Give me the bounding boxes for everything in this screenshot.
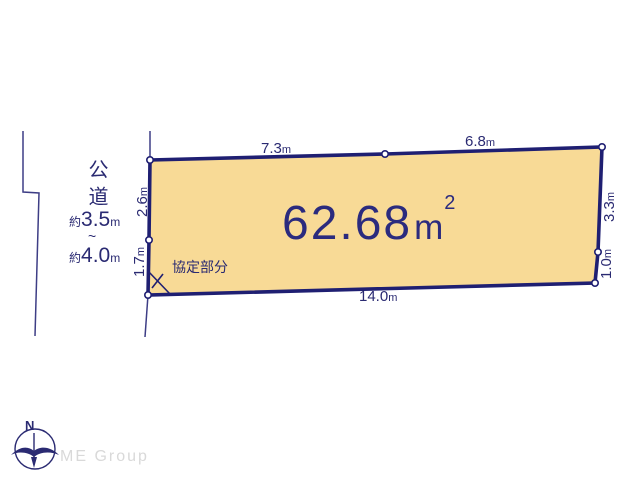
vertex-dot (145, 292, 151, 298)
vertex-dot (599, 144, 605, 150)
dimension-left-lower-segment: 1.7m (131, 240, 147, 284)
dimension-value: 1.0 (598, 258, 615, 279)
road-width-value: 4.0 (81, 245, 110, 266)
parcel-area-label: 62.68 m 2 (282, 200, 454, 248)
dimension-right-lower-segment: 1.0m (598, 242, 614, 286)
dimension-unit: m (138, 187, 150, 196)
approx-prefix: 約 (69, 213, 81, 230)
road-width-range-tilde: ~ (88, 228, 96, 244)
dimension-unit: m (282, 144, 291, 156)
area-unit: m (414, 210, 443, 245)
dimension-bottom-segment: 14.0m (359, 288, 397, 305)
dimension-value: 14.0 (359, 288, 388, 305)
dimension-unit: m (135, 247, 147, 256)
vertex-dot (382, 151, 388, 157)
dimension-right-upper-segment: 3.3m (601, 185, 617, 229)
dimension-unit: m (388, 292, 397, 304)
dimension-value: 2.6 (134, 196, 151, 217)
dimension-top-right-segment: 6.8m (465, 133, 495, 150)
road-width-min: 約3.5m (69, 209, 120, 230)
vertex-dot (147, 157, 153, 163)
dimension-value: 7.3 (261, 140, 282, 157)
land-plot-diagram: 62.68 m 2 7.3m 6.8m 2.6m 1.7m 3.3m 1.0m … (0, 0, 640, 480)
area-value: 62.68 (282, 200, 412, 248)
dimension-value: 6.8 (465, 133, 486, 150)
dimension-top-left-segment: 7.3m (261, 140, 291, 157)
company-watermark: ME Group (60, 448, 149, 466)
road-width-unit: m (110, 215, 120, 229)
road-width-unit: m (110, 251, 120, 265)
compass-north-label: N (25, 418, 34, 433)
area-unit-superscript: 2 (444, 192, 455, 215)
road-width-value: 3.5 (81, 209, 110, 230)
dimension-unit: m (605, 192, 617, 201)
compass-north-icon (11, 429, 59, 469)
dimension-value: 1.7 (131, 256, 148, 277)
public-road-label: 公道 (82, 159, 111, 213)
dimension-value: 3.3 (601, 201, 618, 222)
road-boundary-line (23, 131, 39, 336)
dimension-left-upper-segment: 2.6m (134, 180, 150, 224)
agreement-portion-label: 協定部分 (172, 257, 228, 277)
dimension-unit: m (486, 137, 495, 149)
approx-prefix: 約 (69, 249, 81, 266)
boundary-extension-bottom (145, 295, 148, 337)
dimension-unit: m (602, 249, 614, 258)
road-width-max: 約4.0m (69, 245, 120, 266)
